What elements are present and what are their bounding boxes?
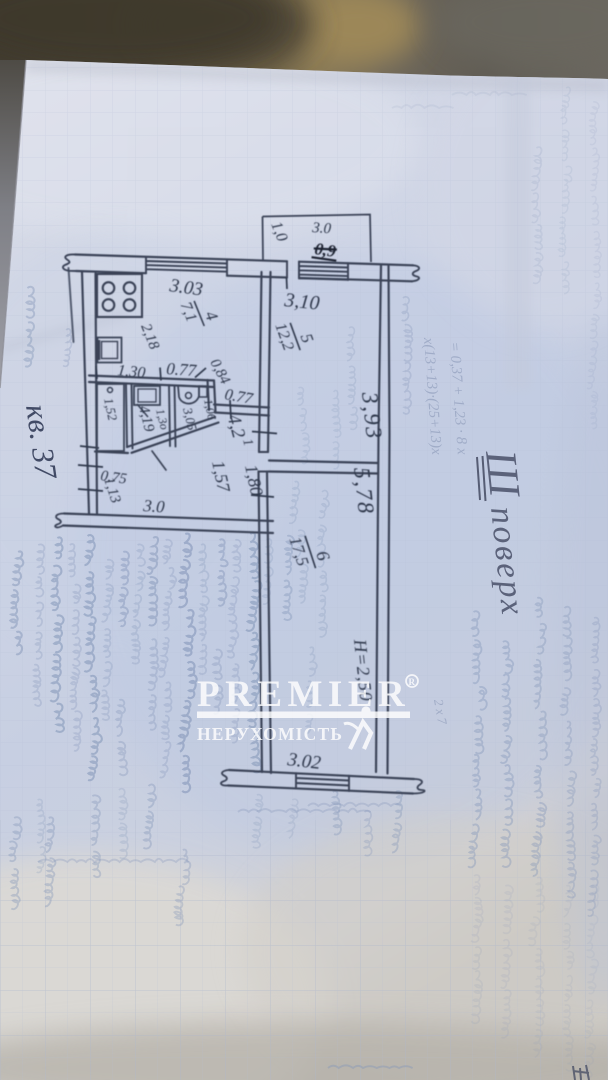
svg-text:3.0: 3.0 — [142, 496, 166, 517]
svg-text:5,78: 5,78 — [349, 466, 379, 517]
svg-text:3.02: 3.02 — [285, 749, 322, 774]
svg-text:3.0: 3.0 — [311, 220, 332, 237]
svg-text:НЕРУХОМІСТЬ: НЕРУХОМІСТЬ — [197, 724, 343, 744]
svg-text:R: R — [409, 677, 416, 687]
svg-text:1.30: 1.30 — [117, 362, 147, 382]
svg-text:0.77: 0.77 — [166, 359, 198, 380]
svg-text:3,93: 3,93 — [357, 390, 387, 442]
svg-text:3,10: 3,10 — [282, 289, 320, 315]
svg-text:PREMIER: PREMIER — [197, 674, 410, 715]
